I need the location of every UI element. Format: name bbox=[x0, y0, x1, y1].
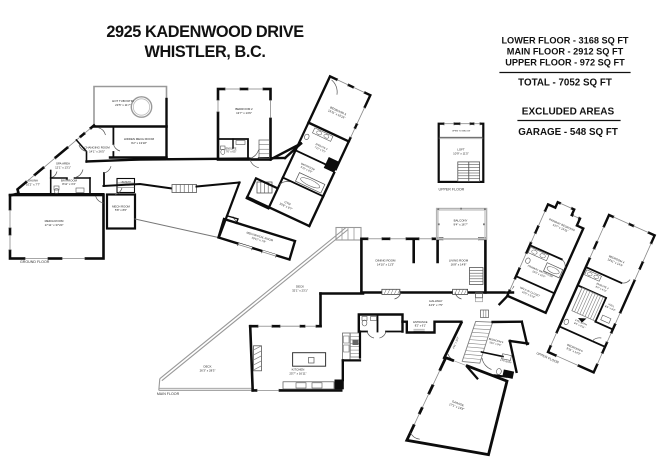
svg-text:16'8" x 14'8": 16'8" x 14'8" bbox=[451, 262, 467, 266]
svg-text:13'7" x 13'6": 13'7" x 13'6" bbox=[236, 111, 252, 115]
svg-text:10'2" x 7'7": 10'2" x 7'7" bbox=[26, 182, 40, 186]
svg-text:9'2" x 13'18": 9'2" x 13'18" bbox=[131, 141, 147, 145]
svg-text:MAIN FLOOR - 2912 SQ FT: MAIN FLOOR - 2912 SQ FT bbox=[507, 47, 624, 57]
svg-text:12'1" x 13'1": 12'1" x 13'1" bbox=[55, 165, 71, 169]
svg-text:26'3" x 28'3": 26'3" x 28'3" bbox=[200, 368, 216, 372]
svg-text:EXCLUDED AREAS: EXCLUDED AREAS bbox=[522, 107, 615, 118]
svg-text:7'6" x 6'5": 7'6" x 6'5" bbox=[226, 151, 237, 154]
svg-text:23'5" x 11'7": 23'5" x 11'7" bbox=[115, 103, 131, 107]
svg-text:5'8" x 8'6": 5'8" x 8'6" bbox=[115, 208, 127, 212]
svg-text:32'1" x 23'1": 32'1" x 23'1" bbox=[292, 288, 308, 292]
svg-text:10'9" x 11'5": 10'9" x 11'5" bbox=[453, 151, 469, 155]
svg-text:OPEN TO BELOW: OPEN TO BELOW bbox=[452, 131, 471, 133]
svg-text:LOWER FLOOR - 3168 SQ FT: LOWER FLOOR - 3168 SQ FT bbox=[501, 36, 628, 46]
svg-text:25'7" x 16'11": 25'7" x 16'11" bbox=[289, 371, 306, 375]
svg-text:14'10" x 11'3": 14'10" x 11'3" bbox=[377, 262, 394, 266]
svg-text:2925 KADENWOOD DRIVE: 2925 KADENWOOD DRIVE bbox=[106, 23, 304, 41]
svg-text:8'2" x 6'1": 8'2" x 6'1" bbox=[415, 323, 426, 327]
svg-text:14'1" x 26'5": 14'1" x 26'5" bbox=[89, 149, 105, 153]
svg-text:44'3" x 7'5": 44'3" x 7'5" bbox=[429, 303, 443, 307]
svg-text:8'11" x 3'4": 8'11" x 3'4" bbox=[62, 182, 76, 186]
svg-text:UPPER FLOOR - 972 SQ FT: UPPER FLOOR - 972 SQ FT bbox=[505, 58, 625, 68]
svg-text:GARAGE - 548 SQ FT: GARAGE - 548 SQ FT bbox=[518, 127, 618, 138]
svg-text:WHISTLER, B.C.: WHISTLER, B.C. bbox=[144, 43, 265, 61]
svg-text:MAIN FLOOR: MAIN FLOOR bbox=[157, 392, 180, 396]
svg-text:9'4" x 16'7": 9'4" x 16'7" bbox=[453, 222, 467, 226]
svg-text:17'11" x 37'20": 17'11" x 37'20" bbox=[45, 223, 64, 227]
svg-text:UPPER FLOOR: UPPER FLOOR bbox=[439, 188, 465, 192]
svg-text:GROUND FLOOR: GROUND FLOOR bbox=[20, 260, 50, 264]
svg-text:TOTAL - 7052 SQ FT: TOTAL - 7052 SQ FT bbox=[518, 78, 612, 89]
